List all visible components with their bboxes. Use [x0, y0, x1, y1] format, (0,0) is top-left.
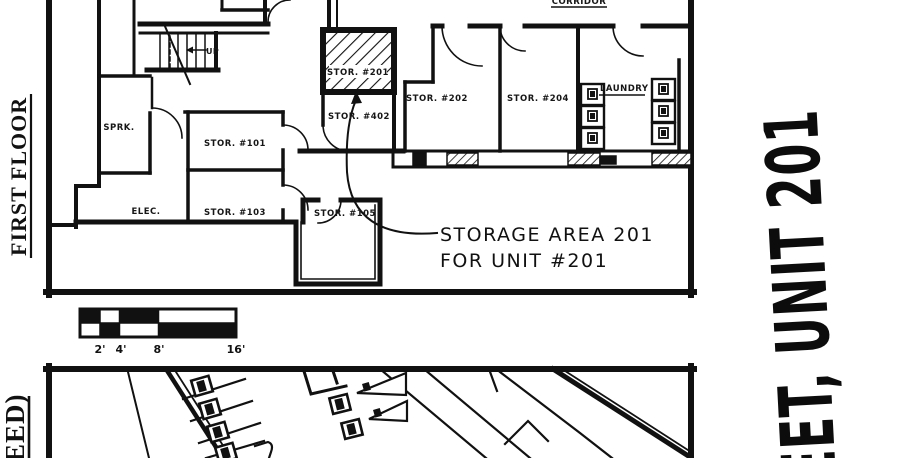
stall-number-tag-icon [207, 422, 229, 442]
lower-plan-title-partial: EED) [0, 393, 30, 458]
scale-tick-2ft: 2' [94, 343, 105, 356]
room-label-stor-105: STOR. #105 [314, 209, 376, 219]
washer-dryer-icon [581, 128, 604, 149]
address-stamp-text: EET, UNIT 201 [748, 107, 854, 458]
stairs-up-label: UP [206, 47, 219, 56]
wall-fill-segments [413, 153, 691, 165]
room-label-corridor: CORRIDOR [552, 0, 607, 7]
room-label-laundry: LAUNDRY [600, 84, 649, 94]
triangle-marker-icon [357, 373, 406, 395]
stall-number-tag-icon [191, 376, 213, 396]
washer-dryer-icon [581, 106, 604, 127]
scale-bar: 2' 4' 8' 16' [80, 309, 245, 356]
washer-dryer-icon [652, 123, 675, 144]
stall-number-tag-icon [329, 394, 350, 414]
room-label-stor-202: STOR. #202 [406, 94, 468, 104]
annotation-line2: FOR UNIT #201 [440, 250, 608, 272]
room-label-stor-201: STOR. #201 [327, 68, 389, 78]
room-label-stor-204: STOR. #204 [507, 94, 569, 104]
triangle-marker-icon [369, 401, 407, 421]
room-label-sprk: SPRK. [103, 123, 134, 133]
washer-dryer-icon [652, 79, 675, 100]
scale-tick-4ft: 4' [115, 343, 126, 356]
washer-dryer-icon [652, 101, 675, 122]
margin-titles: FIRST FLOOR EED) EET, UNIT 201 [0, 94, 854, 458]
room-label-elec: ELEC. [132, 207, 161, 217]
stall-number-tag-icon [199, 399, 221, 419]
scale-tick-8ft: 8' [153, 343, 164, 356]
room-label-stor-101: STOR. #101 [204, 139, 266, 149]
plan-drawing: UP [0, 0, 900, 458]
scale-tick-16ft: 16' [227, 343, 246, 356]
annotation-line1: STORAGE AREA 201 [440, 224, 654, 246]
stall-number-tag-icon [341, 419, 362, 439]
storage-201-hatched-room [323, 30, 394, 92]
room-label-stor-103: STOR. #103 [204, 208, 266, 218]
first-floor-title: FIRST FLOOR [6, 97, 31, 256]
lower-plan [46, 366, 694, 458]
stall-number-tag-icon [215, 443, 237, 458]
room-label-stor-402: STOR. #402 [328, 112, 390, 122]
lower-plan-border [46, 366, 694, 458]
floor-plan-document: UP [0, 0, 900, 458]
